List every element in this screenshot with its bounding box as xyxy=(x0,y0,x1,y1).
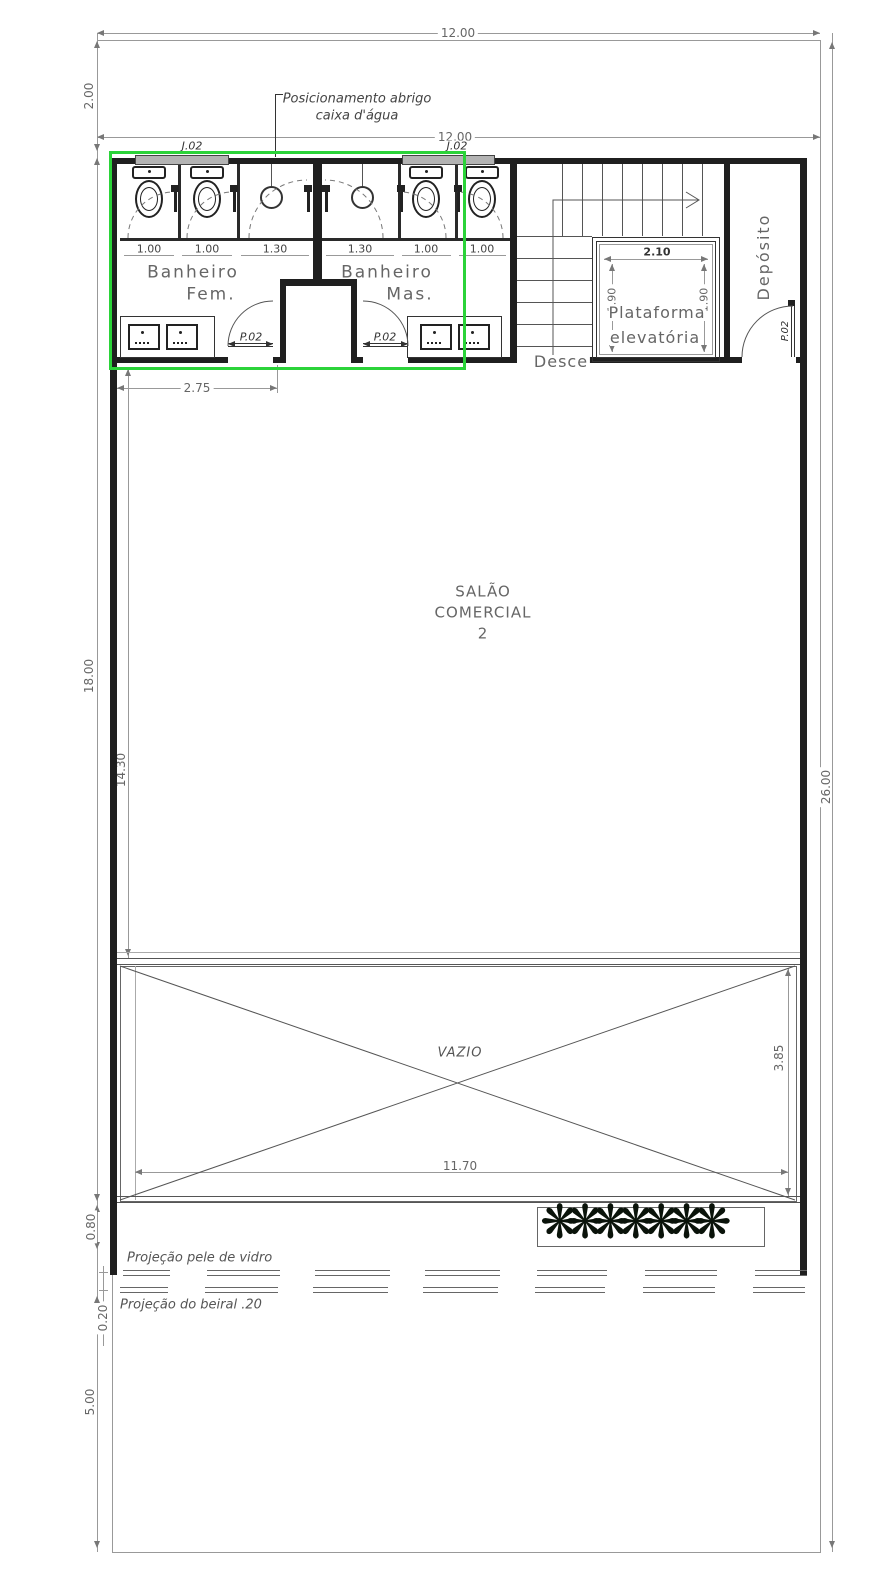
stair-walk-line xyxy=(553,200,698,355)
door-swing-arc xyxy=(742,306,793,357)
void-cross-lines xyxy=(120,966,795,1200)
highlight-rectangle xyxy=(109,151,466,370)
floor-plan-canvas: 12.00 12.00 2.00 18.00 0.80 0.20 5.00 26… xyxy=(0,0,888,1579)
